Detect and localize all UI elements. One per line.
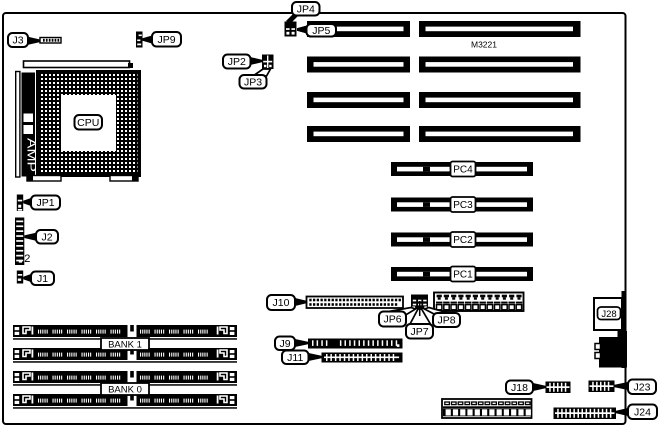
svg-text:J2: J2 (41, 231, 52, 243)
svg-text:PC3: PC3 (453, 200, 473, 211)
svg-text:J11: J11 (287, 352, 303, 364)
svg-text:J10: J10 (273, 297, 290, 309)
svg-text:JP4: JP4 (297, 3, 315, 15)
svg-text:JP2: JP2 (228, 56, 246, 68)
svg-text:PC4: PC4 (453, 165, 473, 176)
svg-text:PC2: PC2 (453, 235, 473, 246)
svg-text:J23: J23 (634, 381, 651, 393)
svg-text:PC1: PC1 (453, 270, 473, 281)
svg-text:J9: J9 (279, 338, 290, 350)
svg-text:BANK 0: BANK 0 (108, 384, 142, 395)
svg-text:J3: J3 (12, 35, 23, 47)
svg-text:JP6: JP6 (383, 314, 401, 326)
svg-text:J28: J28 (601, 309, 616, 320)
svg-text:JP8: JP8 (437, 315, 455, 327)
svg-text:M3221: M3221 (471, 40, 497, 50)
svg-text:J24: J24 (634, 406, 651, 418)
svg-text:JP9: JP9 (157, 34, 175, 46)
svg-text:JP5: JP5 (312, 25, 330, 37)
svg-text:2: 2 (24, 253, 30, 265)
svg-text:BANK 1: BANK 1 (108, 339, 142, 350)
svg-text:CPU: CPU (77, 117, 99, 129)
svg-text:J1: J1 (37, 273, 48, 285)
svg-text:JP7: JP7 (410, 326, 428, 338)
svg-text:JP3: JP3 (244, 76, 262, 88)
svg-text:JP1: JP1 (36, 197, 54, 209)
svg-text:J18: J18 (511, 382, 528, 394)
